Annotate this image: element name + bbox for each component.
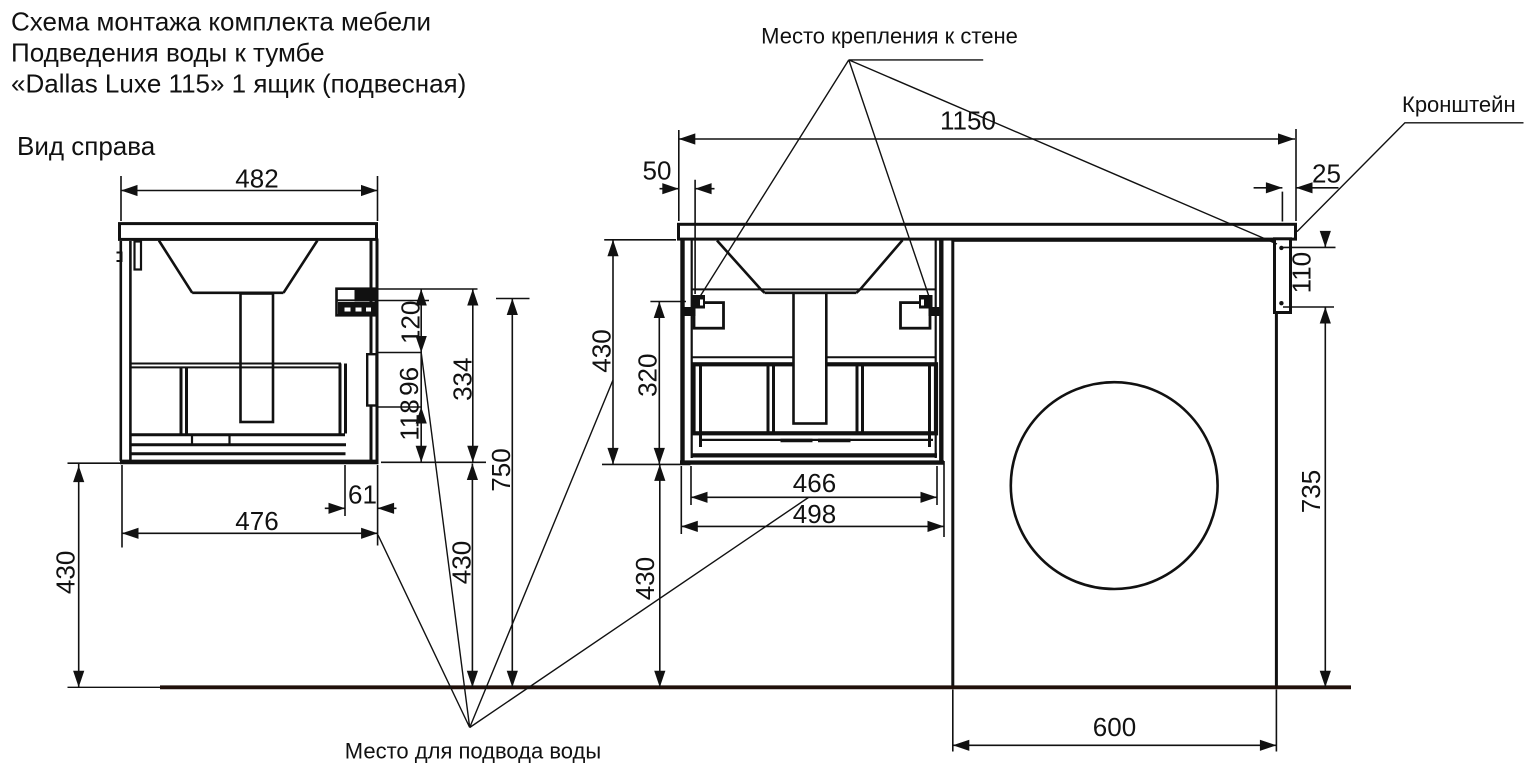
svg-text:735: 735 bbox=[1296, 470, 1326, 513]
svg-text:430: 430 bbox=[587, 329, 617, 372]
svg-text:25: 25 bbox=[1312, 159, 1341, 189]
svg-text:Место для подвода воды: Место для подвода воды bbox=[345, 739, 601, 764]
svg-text:Вид справа: Вид справа bbox=[17, 131, 156, 161]
svg-text:96: 96 bbox=[394, 367, 424, 396]
svg-text:600: 600 bbox=[1093, 712, 1136, 742]
svg-text:466: 466 bbox=[793, 468, 836, 498]
svg-text:430: 430 bbox=[51, 551, 81, 594]
svg-text:120: 120 bbox=[396, 301, 426, 344]
svg-text:476: 476 bbox=[235, 506, 278, 536]
svg-text:«Dallas Luxe 115» 1 ящик (подв: «Dallas Luxe 115» 1 ящик (подвесная) bbox=[11, 69, 466, 99]
svg-text:50: 50 bbox=[643, 156, 672, 186]
svg-text:498: 498 bbox=[793, 499, 836, 529]
svg-text:334: 334 bbox=[448, 358, 478, 401]
svg-text:118: 118 bbox=[394, 399, 424, 440]
svg-text:61: 61 bbox=[348, 480, 377, 510]
svg-text:Схема монтажа комплекта мебели: Схема монтажа комплекта мебели bbox=[11, 7, 431, 37]
svg-text:750: 750 bbox=[486, 448, 516, 491]
svg-text:1150: 1150 bbox=[940, 106, 996, 136]
svg-text:Место крепления к стене: Место крепления к стене bbox=[761, 24, 1018, 49]
svg-text:320: 320 bbox=[633, 354, 663, 397]
svg-text:430: 430 bbox=[447, 541, 477, 584]
svg-text:Кронштейн: Кронштейн bbox=[1402, 92, 1516, 117]
svg-text:482: 482 bbox=[235, 164, 278, 194]
svg-text:Подведения воды к тумбе: Подведения воды к тумбе bbox=[11, 38, 325, 68]
svg-text:110: 110 bbox=[1287, 252, 1317, 293]
svg-text:430: 430 bbox=[630, 557, 660, 600]
